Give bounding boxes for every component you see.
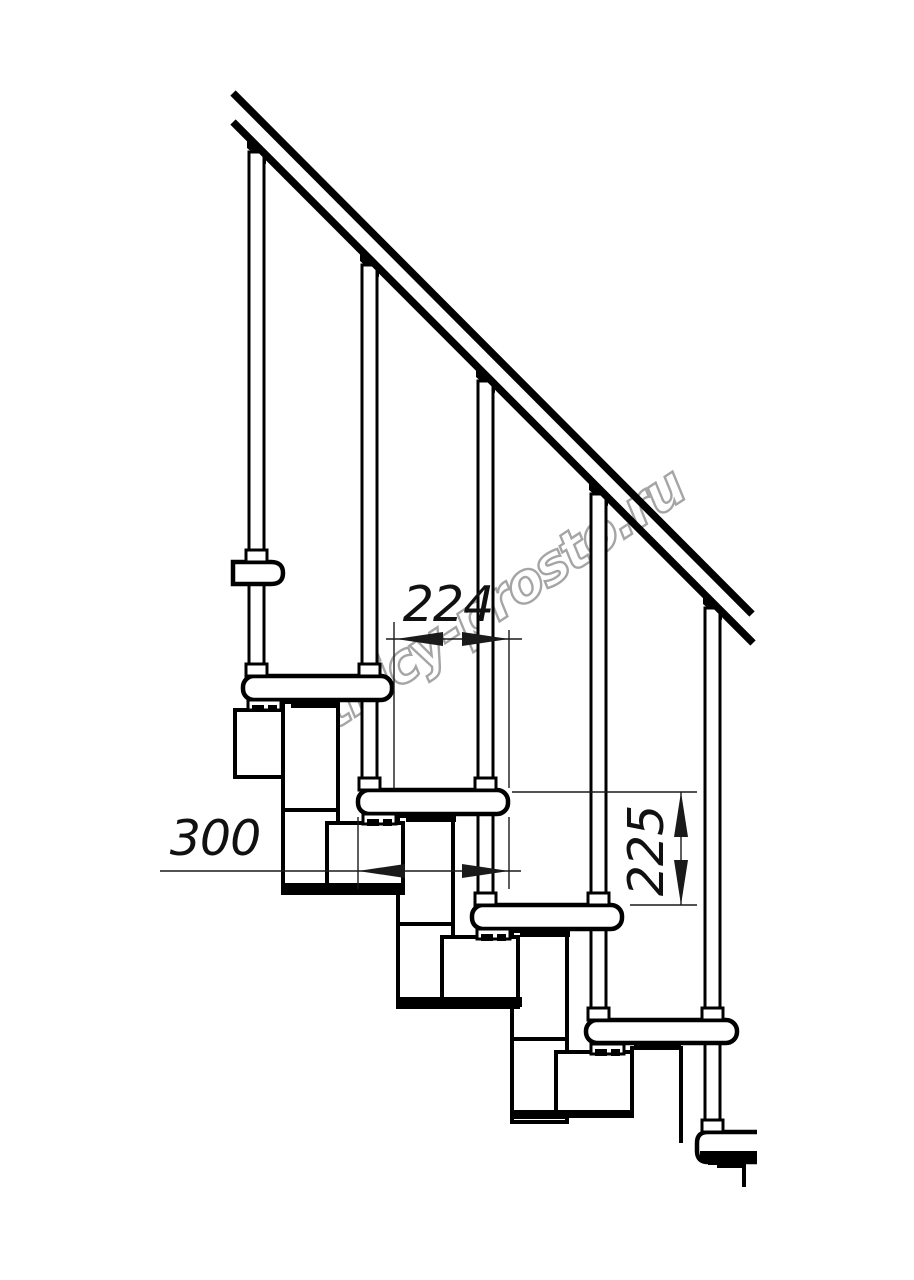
arrow-up-icon	[674, 792, 688, 837]
staircase-technical-drawing: lestnicy-prosto.ru	[0, 0, 914, 1280]
baluster-5-foot	[702, 1120, 723, 1132]
tread-3	[358, 790, 508, 814]
tread-4	[472, 905, 622, 929]
tread-5-bracket-nub	[611, 1049, 620, 1056]
tread-4-bracket-nub	[481, 934, 493, 941]
tread-3-module-joint	[406, 814, 456, 822]
tread-1-partial	[233, 562, 283, 584]
tread-5-bracket-nub	[595, 1049, 607, 1056]
tread-6-bracket	[708, 1153, 737, 1165]
tread-5-module-joint	[634, 1042, 681, 1050]
baluster-1-collar	[246, 550, 267, 562]
stringer-module-a5-partial	[632, 1046, 681, 1143]
stringer-module-b2	[327, 823, 403, 893]
baluster-4-collar	[588, 893, 609, 905]
tread-2-module-joint	[291, 700, 338, 708]
stringer-module-b5-partial	[717, 1166, 744, 1187]
baluster-2-foot	[359, 778, 380, 790]
stringer-module-b3	[442, 937, 518, 1007]
baluster-4-post	[591, 494, 606, 1020]
stringer-module-b4	[556, 1052, 632, 1116]
module-b3-base	[440, 997, 522, 1007]
tread-2	[243, 676, 392, 700]
stringer-modules	[281, 702, 744, 1187]
tread-4-module-joint	[520, 929, 570, 937]
baluster-5-collar	[702, 1008, 723, 1020]
baluster-4-foot	[588, 1008, 609, 1020]
baluster-2-collar	[359, 664, 380, 676]
baluster-4	[589, 478, 608, 1020]
stringer-upper-cut-module	[235, 710, 285, 777]
module-b4-base	[554, 1110, 634, 1118]
tread-3-bracket-nub	[383, 819, 392, 826]
baluster-1-post	[249, 152, 264, 676]
baluster-1-foot	[246, 664, 267, 676]
arrow-down-icon	[674, 860, 688, 905]
tread-5	[586, 1020, 737, 1043]
dimension-rise-label: 225	[618, 806, 675, 897]
drawing-canvas: lestnicy-prosto.ru	[0, 0, 914, 1280]
baluster-5	[703, 592, 722, 1132]
dimension-tread-depth-label: 300	[170, 810, 261, 867]
module-b2-base	[325, 883, 405, 893]
tread-2-bracket-nub	[268, 705, 277, 712]
tread-2-bracket-nub	[252, 705, 264, 712]
tread-4-bracket-nub	[497, 934, 506, 941]
tread-3-bracket-nub	[367, 819, 379, 826]
baluster-2	[360, 249, 379, 790]
baluster-5-post	[705, 608, 720, 1132]
baluster-3-collar	[475, 778, 496, 790]
baluster-1	[247, 136, 266, 676]
baluster-2-post	[362, 265, 377, 790]
dimension-going-label: 224	[403, 576, 494, 633]
baluster-3-foot	[475, 893, 496, 905]
